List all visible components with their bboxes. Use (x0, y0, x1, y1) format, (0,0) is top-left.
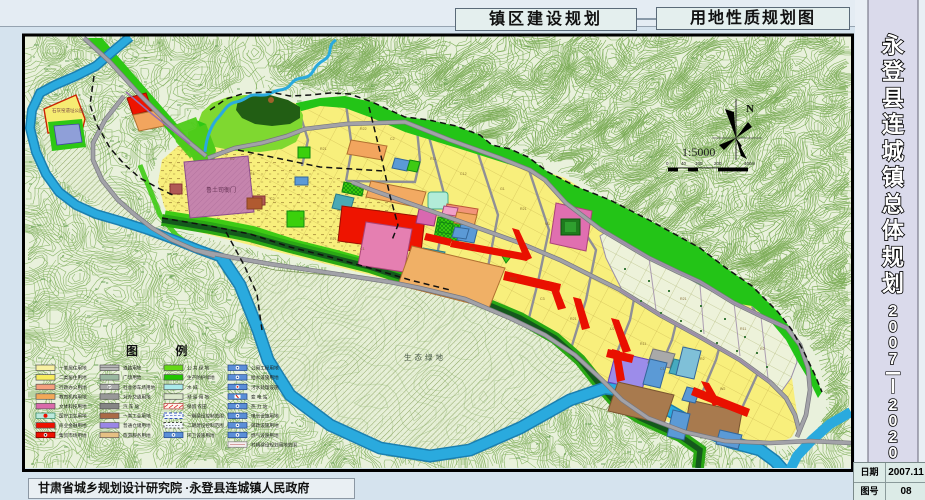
svg-text:R21: R21 (520, 207, 527, 211)
svg-text:2: 2 (889, 429, 898, 446)
svg-text:村镇建设规划用地范围: 村镇建设规划用地范围 (251, 441, 297, 448)
svg-text:R11: R11 (640, 342, 646, 346)
svg-text:规: 规 (882, 245, 904, 270)
svg-text:行政办公用地: 行政办公用地 (59, 384, 87, 391)
svg-text:登: 登 (881, 59, 905, 84)
svg-text:鲁土司衙门: 鲁土司衙门 (206, 186, 236, 194)
svg-text:R22: R22 (510, 277, 517, 281)
svg-text:R21: R21 (680, 297, 687, 301)
svg-text:R2: R2 (230, 157, 235, 161)
svg-text:公用工程用地: 公用工程用地 (251, 365, 279, 372)
svg-text:石灰窑遗址公园: 石灰窑遗址公园 (52, 107, 84, 114)
svg-text:预 留 用 地: 预 留 用 地 (187, 393, 210, 400)
svg-text:水 域: 水 域 (187, 384, 198, 390)
svg-text:R11: R11 (430, 157, 436, 161)
svg-text:社会停车场用地: 社会停车场用地 (123, 384, 156, 391)
svg-text:生态绿地: 生态绿地 (404, 352, 446, 362)
svg-text:燃气设施用地: 燃气设施用地 (251, 432, 279, 439)
svg-text:U2: U2 (610, 327, 615, 331)
svg-text:400m: 400m (744, 161, 756, 166)
svg-text:一期建设控制范围: 一期建设控制范围 (187, 413, 224, 420)
svg-text:连: 连 (882, 112, 905, 137)
svg-text:R1: R1 (250, 172, 255, 176)
svg-text:C2: C2 (390, 137, 395, 141)
svg-text:总: 总 (882, 192, 904, 217)
svg-text:1:5000: 1:5000 (682, 145, 715, 159)
svg-text:环卫设施用地: 环卫设施用地 (187, 432, 215, 439)
svg-text:40: 40 (681, 161, 687, 166)
svg-text:R2: R2 (700, 357, 705, 361)
svg-text:教育机构用地: 教育机构用地 (59, 393, 87, 400)
svg-text:道路用地: 道路用地 (123, 365, 142, 372)
svg-text:2: 2 (889, 397, 898, 414)
svg-text:二期建设控制范围: 二期建设控制范围 (187, 422, 224, 429)
svg-text:图 例: 图 例 (126, 343, 204, 358)
svg-text:体: 体 (882, 218, 905, 243)
svg-text:N: N (746, 103, 754, 115)
svg-text:W2: W2 (720, 387, 725, 391)
svg-text:医疗卫生用地: 医疗卫生用地 (59, 413, 87, 420)
svg-text:电信设施用地: 电信设施用地 (251, 413, 279, 420)
svg-text:R22: R22 (360, 127, 367, 131)
svg-text:商业金融用地: 商业金融用地 (59, 422, 87, 429)
svg-text:邮政设施用地: 邮政设施用地 (251, 422, 279, 429)
svg-text:W1: W1 (470, 247, 475, 251)
svg-text:R21: R21 (330, 237, 337, 241)
svg-text:文体科技用地: 文体科技用地 (59, 403, 87, 410)
svg-text:C1: C1 (660, 367, 665, 371)
svg-text:C1: C1 (360, 247, 365, 251)
svg-text:广场用地: 广场用地 (123, 374, 142, 381)
svg-text:普通仓储用地: 普通仓储用地 (123, 422, 151, 429)
svg-text:7: 7 (889, 351, 898, 368)
svg-text:C3: C3 (540, 297, 545, 301)
svg-text:一类工业用地: 一类工业用地 (123, 413, 151, 420)
svg-text:100: 100 (695, 161, 703, 166)
svg-text:0: 0 (889, 413, 898, 430)
svg-text:P: P (108, 386, 111, 390)
svg-text:保留 农田: 保留 农田 (187, 403, 207, 410)
svg-text:公 共 绿 地: 公 共 绿 地 (187, 365, 210, 372)
svg-text:0: 0 (889, 335, 898, 352)
svg-text:R21: R21 (570, 317, 577, 321)
svg-text:热 力 站: 热 力 站 (251, 403, 268, 410)
svg-text:M1: M1 (545, 222, 550, 226)
svg-text:0: 0 (889, 445, 898, 462)
svg-text:给水设施用地: 给水设施用地 (251, 374, 279, 381)
svg-text:2: 2 (889, 303, 898, 320)
svg-text:C12: C12 (460, 172, 467, 176)
svg-text:R2: R2 (760, 347, 765, 351)
svg-text:二类居住用地: 二类居住用地 (59, 374, 87, 381)
svg-text:汽 车 站: 汽 车 站 (123, 403, 140, 410)
svg-text:C2: C2 (270, 197, 275, 201)
svg-text:0: 0 (889, 319, 898, 336)
svg-text:污水处理设施: 污水处理设施 (251, 384, 279, 391)
svg-text:县: 县 (882, 86, 904, 111)
svg-text:永: 永 (882, 33, 904, 58)
svg-text:R21: R21 (320, 147, 327, 151)
svg-text:旅游服务用地: 旅游服务用地 (123, 432, 151, 439)
svg-text:R11: R11 (740, 327, 746, 331)
svg-text:集贸市场用地: 集贸市场用地 (59, 432, 87, 439)
svg-text:变 电 站: 变 电 站 (251, 393, 268, 400)
svg-text:镇: 镇 (882, 165, 904, 190)
svg-text:对外交通用地: 对外交通用地 (123, 393, 151, 400)
svg-text:城: 城 (882, 139, 904, 164)
svg-text:划: 划 (882, 271, 904, 296)
svg-text:一类居住用地: 一类居住用地 (59, 365, 87, 372)
svg-text:200: 200 (714, 161, 722, 166)
svg-text:生产防护绿地: 生产防护绿地 (187, 374, 215, 381)
svg-text:R11: R11 (300, 217, 306, 221)
svg-text:G1: G1 (500, 187, 505, 191)
